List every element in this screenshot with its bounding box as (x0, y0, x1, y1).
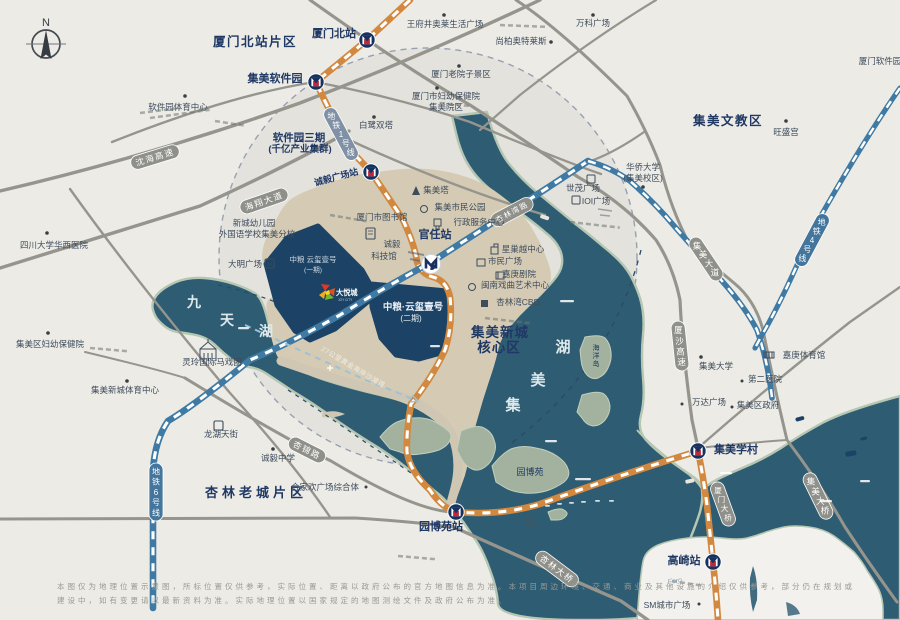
svg-text:线: 线 (152, 507, 160, 517)
svg-text:建设中，如有变更请以最新资料为准。实际地理位置以国家规定的地: 建设中，如有变更请以最新资料为准。实际地理位置以国家规定的地图测绘文件及政府公布… (57, 595, 509, 605)
svg-text:万达广场: 万达广场 (692, 397, 726, 407)
svg-text:高: 高 (676, 346, 685, 356)
svg-text:中粮·云玺壹号: 中粮·云玺壹号 (383, 301, 444, 313)
svg-text:桥: 桥 (724, 512, 732, 522)
svg-text:厦门老院子景区: 厦门老院子景区 (431, 69, 491, 79)
svg-text:集: 集 (807, 477, 816, 487)
svg-text:4: 4 (810, 236, 815, 245)
svg-text:尚柏奥特莱斯: 尚柏奥特莱斯 (495, 36, 547, 46)
svg-text:园博苑站: 园博苑站 (419, 519, 463, 533)
svg-text:行政服务中心: 行政服务中心 (453, 217, 505, 227)
svg-text:集美新城: 集美新城 (470, 324, 529, 340)
svg-text:厦: 厦 (714, 486, 722, 495)
svg-text:铁: 铁 (152, 477, 160, 487)
svg-text:嘉庚剧院: 嘉庚剧院 (502, 269, 537, 279)
svg-text:速: 速 (677, 357, 686, 367)
svg-text:集美学村: 集美学村 (713, 442, 758, 456)
svg-text:大: 大 (721, 503, 729, 513)
svg-text:四川大学华西医院: 四川大学华西医院 (20, 240, 89, 250)
svg-text:诚毅: 诚毅 (383, 239, 401, 249)
svg-text:诚毅中学: 诚毅中学 (261, 453, 296, 463)
svg-text:线: 线 (347, 147, 355, 157)
svg-text:第二医院: 第二医院 (748, 374, 783, 384)
svg-text:铁: 铁 (332, 120, 340, 130)
svg-text:道: 道 (711, 267, 720, 277)
svg-text:湖: 湖 (555, 339, 570, 356)
svg-text:高崎站: 高崎站 (668, 553, 701, 567)
svg-text:集美区妇幼保健院: 集美区妇幼保健院 (16, 339, 85, 349)
svg-text:岛: 岛 (593, 359, 600, 368)
svg-text:集美院区: 集美院区 (429, 102, 464, 112)
svg-text:合家欢广场综合体: 合家欢广场综合体 (291, 482, 360, 492)
svg-text:大明广场: 大明广场 (228, 259, 262, 269)
svg-text:桥: 桥 (821, 505, 830, 515)
svg-text:地: 地 (152, 467, 160, 477)
svg-text:(集美校区): (集美校区) (623, 173, 663, 183)
svg-text:九: 九 (186, 294, 201, 310)
svg-text:铁: 铁 (813, 226, 821, 236)
svg-text:世茂广场: 世茂广场 (566, 183, 600, 193)
svg-text:核心区: 核心区 (477, 339, 521, 355)
svg-text:门: 门 (718, 495, 726, 504)
svg-text:(二期): (二期) (400, 314, 422, 323)
svg-text:(千亿产业集群): (千亿产业集群) (268, 143, 331, 155)
svg-text:集美文教区: 集美文教区 (692, 113, 763, 128)
svg-text:厦: 厦 (674, 325, 683, 335)
svg-text:官任站: 官任站 (419, 227, 452, 241)
svg-text:万科广场: 万科广场 (576, 18, 610, 28)
svg-text:王府井奥莱生活广场: 王府井奥莱生活广场 (407, 19, 484, 29)
svg-text:(一期): (一期) (304, 266, 322, 274)
svg-text:海: 海 (593, 343, 600, 352)
svg-text:杏林湾CBD: 杏林湾CBD (496, 297, 539, 307)
svg-text:地: 地 (327, 111, 335, 121)
svg-text:IOI广场: IOI广场 (582, 196, 610, 206)
svg-text:集美塔: 集美塔 (423, 185, 449, 195)
svg-text:号: 号 (803, 245, 811, 254)
svg-text:集美新城体育中心: 集美新城体育中心 (91, 385, 160, 395)
svg-text:星巢越中心: 星巢越中心 (502, 244, 545, 254)
svg-text:洋: 洋 (593, 351, 600, 360)
svg-text:外国语学校集美分校: 外国语学校集美分校 (219, 229, 296, 239)
svg-text:厦门北站: 厦门北站 (312, 26, 356, 40)
svg-text:科技馆: 科技馆 (371, 251, 397, 261)
svg-text:线: 线 (798, 253, 806, 263)
svg-text:大悦城: 大悦城 (336, 288, 358, 297)
svg-text:地: 地 (818, 217, 826, 227)
svg-text:集美大学: 集美大学 (699, 361, 734, 371)
svg-text:厦门软件园: 厦门软件园 (859, 56, 900, 66)
svg-text:6: 6 (154, 488, 159, 497)
svg-text:集美市民公园: 集美市民公园 (434, 202, 485, 212)
svg-text:1: 1 (339, 130, 344, 139)
svg-text:厦门市妇幼保健院: 厦门市妇幼保健院 (412, 91, 481, 101)
svg-text:集美软件园: 集美软件园 (247, 71, 303, 85)
svg-text:号: 号 (152, 498, 160, 507)
svg-text:湖: 湖 (259, 323, 273, 339)
svg-text:华侨大学: 华侨大学 (626, 162, 661, 172)
svg-text:JOY CITY: JOY CITY (338, 298, 353, 302)
svg-text:N: N (42, 17, 50, 29)
svg-text:集美区政府: 集美区政府 (737, 400, 780, 410)
svg-text:白鹭双塔: 白鹭双塔 (359, 120, 394, 130)
svg-text:美: 美 (530, 371, 546, 389)
svg-text:厦门北站片区: 厦门北站片区 (213, 34, 297, 49)
svg-text:号: 号 (342, 139, 350, 148)
svg-text:软件园三期: 软件园三期 (273, 131, 326, 144)
svg-text:嘉庚体育馆: 嘉庚体育馆 (783, 350, 826, 360)
svg-text:新城幼儿园: 新城幼儿园 (233, 218, 276, 228)
svg-text:天: 天 (220, 312, 235, 328)
svg-text:旺盛宫: 旺盛宫 (773, 127, 799, 137)
svg-text:集: 集 (504, 396, 521, 414)
svg-text:园博苑: 园博苑 (516, 466, 543, 477)
svg-text:市民广场: 市民广场 (488, 256, 522, 266)
svg-text:中粮 云玺壹号: 中粮 云玺壹号 (289, 254, 336, 264)
svg-text:沙: 沙 (675, 336, 684, 346)
svg-text:SM城市广场: SM城市广场 (644, 600, 691, 610)
svg-text:美: 美 (811, 486, 820, 496)
svg-text:本图仅为地理位置示意图，所标位置仅供参考，实际位置、距离以政: 本图仅为地理位置示意图，所标位置仅供参考，实际位置、距离以政府公布的官方地图信息… (57, 581, 855, 591)
svg-text:闽南戏曲艺术中心: 闽南戏曲艺术中心 (481, 280, 550, 290)
